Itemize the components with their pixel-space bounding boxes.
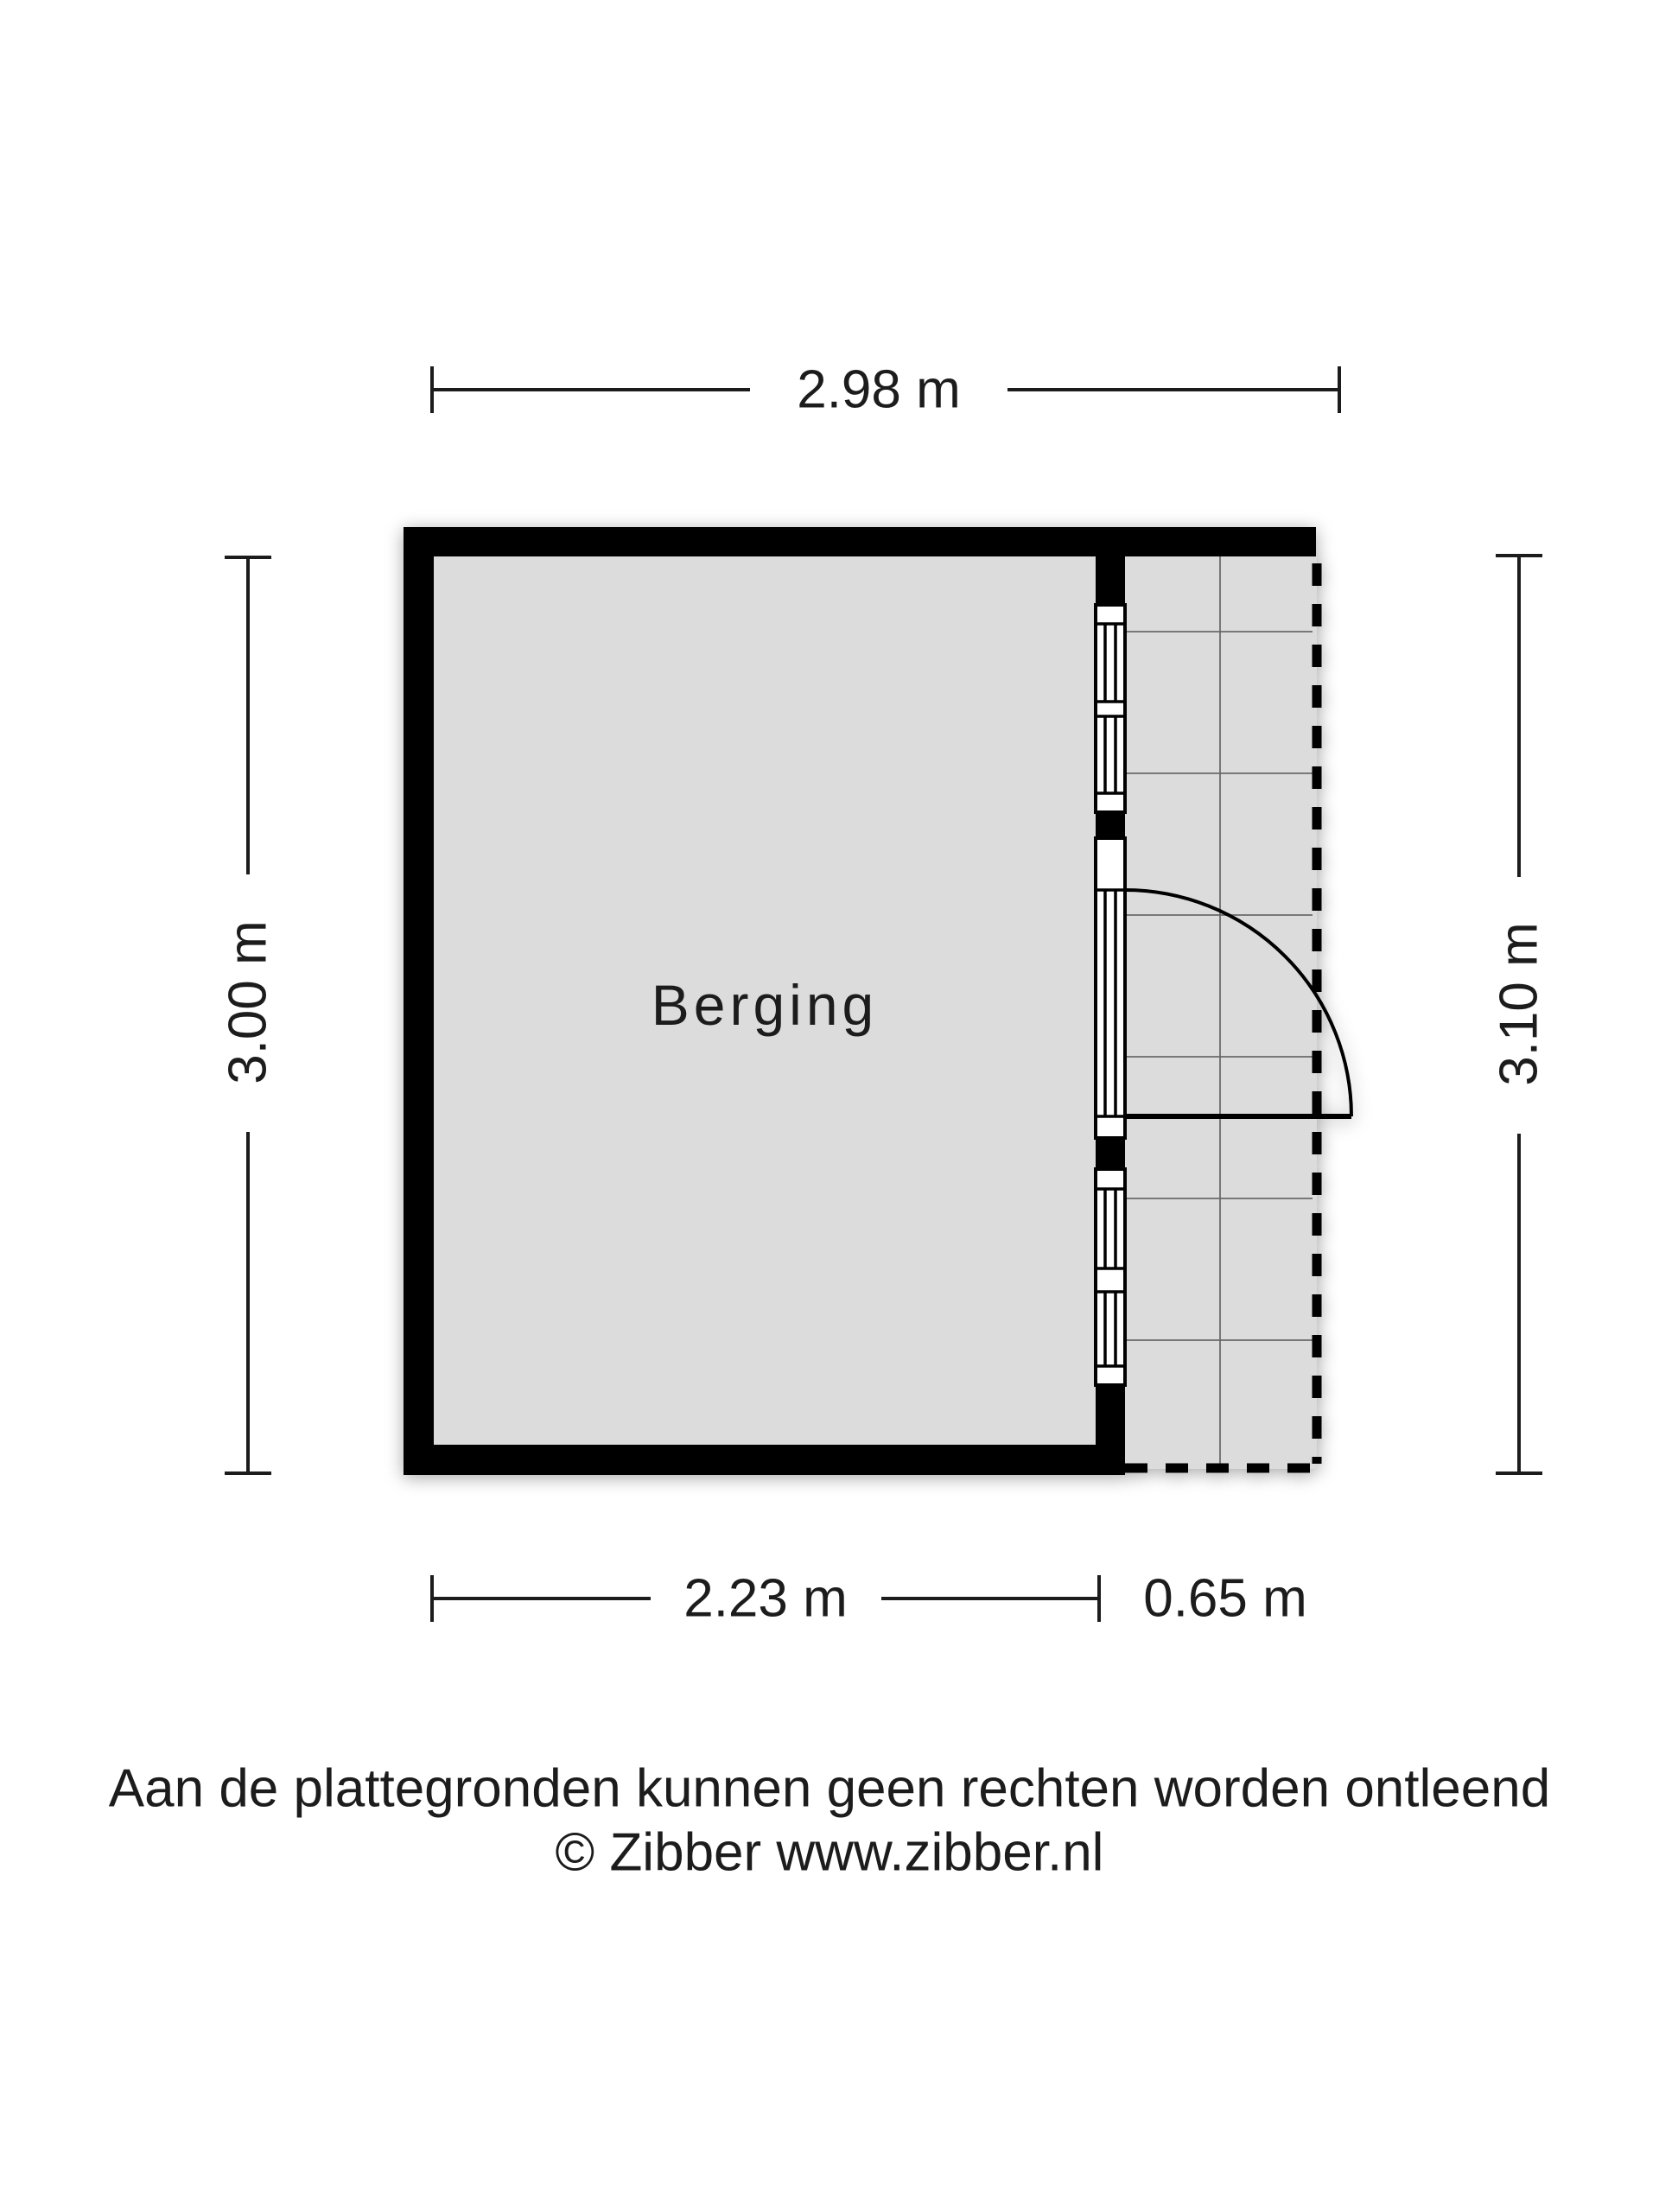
wall-left — [404, 527, 434, 1475]
dim-right-label: 3.10 m — [1490, 922, 1549, 1086]
floorplan-page: Berging 2.98 m 3.00 m 3.10 m 2.23 m 0.65… — [0, 0, 1659, 2212]
footer: Aan de plattegronden kunnen geen rechten… — [109, 1759, 1550, 1883]
porch-area — [1125, 556, 1321, 1469]
dimension-top: 2.98 m — [432, 360, 1339, 420]
dim-top-label: 2.98 m — [797, 360, 961, 420]
window-lower — [1096, 1169, 1125, 1385]
wall-top — [404, 527, 1316, 556]
dimension-left: 3.00 m — [219, 557, 278, 1473]
door-unit — [1096, 838, 1125, 1138]
footer-disclaimer: Aan de plattegronden kunnen geen rechten… — [109, 1759, 1550, 1819]
dimension-right: 3.10 m — [1490, 556, 1549, 1473]
footer-credit: © Zibber www.zibber.nl — [556, 1823, 1104, 1883]
floorplan-canvas: Berging 2.98 m 3.00 m 3.10 m 2.23 m 0.65… — [0, 0, 1659, 2212]
dim-bottom-room-label: 2.23 m — [683, 1569, 848, 1629]
wall-bottom — [404, 1445, 1125, 1475]
room-label: Berging — [652, 973, 879, 1037]
dim-bottom-porch-label: 0.65 m — [1143, 1569, 1307, 1629]
dimension-bottom: 2.23 m 0.65 m — [432, 1569, 1307, 1629]
dim-left-label: 3.00 m — [219, 920, 278, 1084]
window-upper — [1096, 605, 1125, 812]
